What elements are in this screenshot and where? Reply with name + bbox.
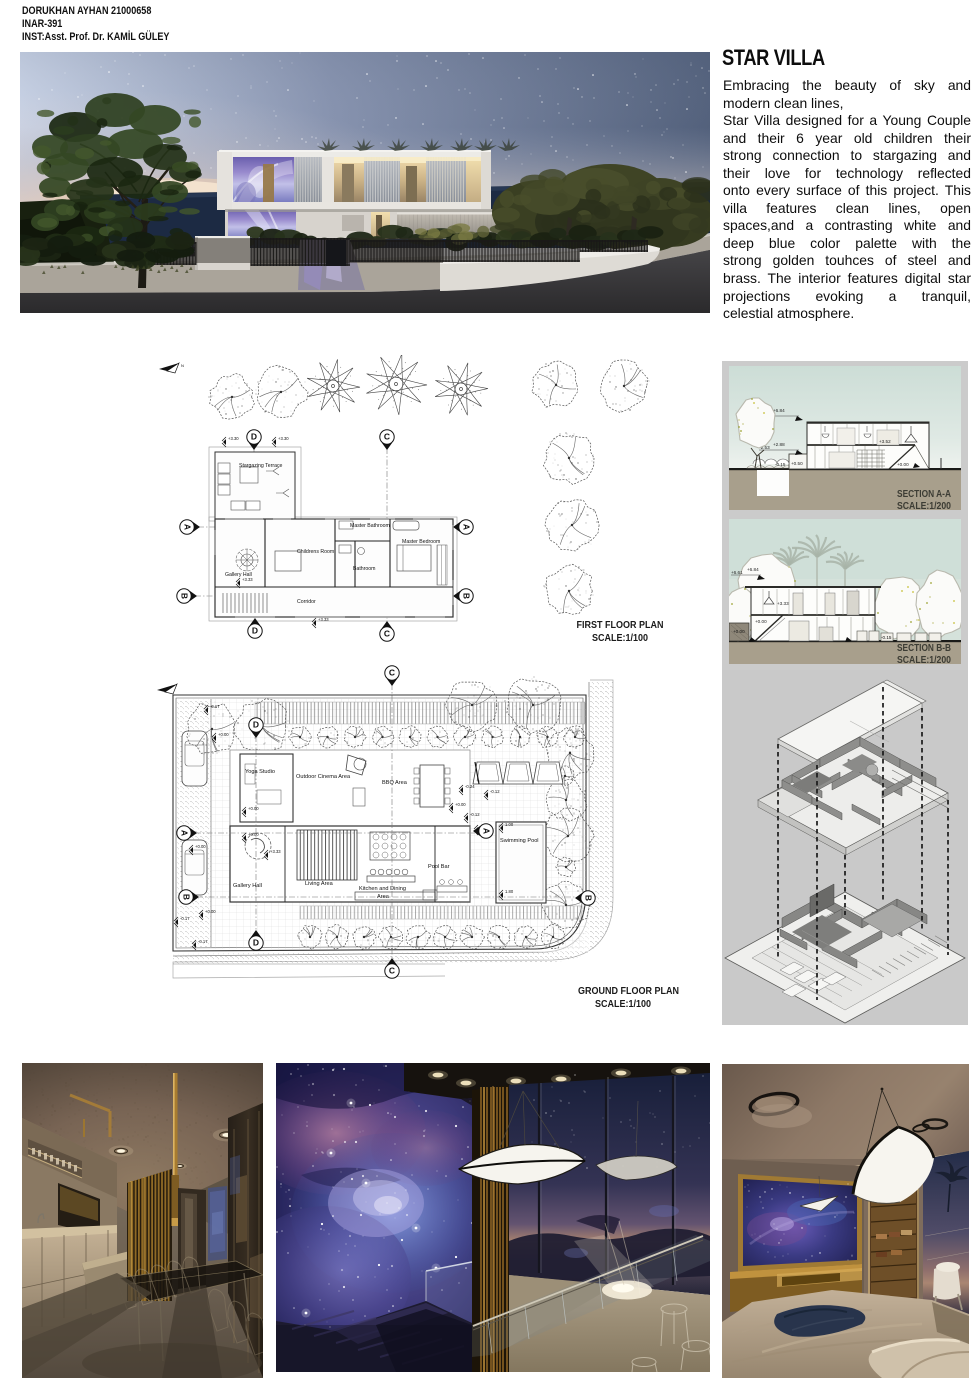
svg-text:Gallery Hall: Gallery Hall xyxy=(233,883,262,889)
svg-text:+3.33: +3.33 xyxy=(270,849,281,854)
svg-text:D: D xyxy=(252,626,258,636)
svg-text:+0.00: +0.00 xyxy=(248,806,259,811)
svg-text:-0.17: -0.17 xyxy=(180,916,190,921)
svg-text:+0.00: +0.00 xyxy=(897,462,909,467)
svg-text:+6.61: +6.61 xyxy=(731,570,743,575)
svg-text:Master Bedroom: Master Bedroom xyxy=(402,539,440,545)
svg-text:C: C xyxy=(384,432,390,442)
svg-text:-0.24: -0.24 xyxy=(465,784,475,789)
svg-text:+0.00: +0.00 xyxy=(455,802,466,807)
svg-text:Corridor: Corridor xyxy=(297,599,316,605)
svg-text:Swimming Pool: Swimming Pool xyxy=(500,838,539,844)
svg-text:SECTION B-B: SECTION B-B xyxy=(897,642,951,654)
svg-text:N: N xyxy=(181,363,184,368)
svg-text:+6.84: +6.84 xyxy=(773,408,785,413)
svg-text:-0.17: -0.17 xyxy=(210,704,220,709)
svg-text:1.00: 1.00 xyxy=(505,822,514,827)
svg-text:B: B xyxy=(583,895,593,901)
svg-text:Pool Bar: Pool Bar xyxy=(428,864,450,870)
svg-text:C: C xyxy=(389,966,395,976)
svg-text:+0.00: +0.00 xyxy=(218,732,229,737)
svg-text:-0.12: -0.12 xyxy=(490,789,500,794)
svg-text:1.80: 1.80 xyxy=(505,889,514,894)
svg-text:Kitchen and Dining: Kitchen and Dining xyxy=(359,886,406,892)
svg-text:SECTION A-A: SECTION A-A xyxy=(897,488,951,500)
svg-text:+3.33: +3.33 xyxy=(318,617,329,622)
svg-text:A: A xyxy=(481,828,491,834)
svg-text:Stargazing Terrace: Stargazing Terrace xyxy=(239,463,283,469)
svg-text:+3.30: +3.30 xyxy=(228,436,239,441)
svg-text:+3.33: +3.33 xyxy=(242,577,253,582)
svg-text:+0.00: +0.00 xyxy=(205,909,216,914)
svg-text:-0.15: -0.15 xyxy=(775,462,786,467)
svg-text:B: B xyxy=(461,593,471,599)
svg-text:C: C xyxy=(384,629,390,639)
svg-text:+3.52: +3.52 xyxy=(879,439,891,444)
svg-text:+0.50: +0.50 xyxy=(791,461,803,466)
svg-text:D: D xyxy=(253,938,259,948)
svg-text:A: A xyxy=(461,524,471,530)
svg-text:+3.33: +3.33 xyxy=(777,601,789,606)
svg-text:+0.00: +0.00 xyxy=(195,844,206,849)
svg-text:B: B xyxy=(181,894,191,900)
svg-text:Yoga Studio: Yoga Studio xyxy=(245,769,275,775)
svg-text:-0.17: -0.17 xyxy=(198,939,208,944)
svg-text:A: A xyxy=(182,524,192,530)
svg-text:+6.84: +6.84 xyxy=(747,567,759,572)
svg-text:A: A xyxy=(179,830,189,836)
svg-text:+0.00: +0.00 xyxy=(248,832,259,837)
svg-text:D: D xyxy=(253,720,259,730)
svg-text:-0.15: -0.15 xyxy=(881,635,892,640)
svg-text:+3.30: +3.30 xyxy=(278,436,289,441)
svg-text:C: C xyxy=(389,668,395,678)
svg-text:+0.00: +0.00 xyxy=(733,629,745,634)
svg-text:B: B xyxy=(179,593,189,599)
svg-text:BBQ Area: BBQ Area xyxy=(382,780,408,786)
svg-text:SCALE:1/200: SCALE:1/200 xyxy=(897,500,951,510)
svg-text:Master Bathroom: Master Bathroom xyxy=(350,523,390,529)
svg-text:+0.00: +0.00 xyxy=(755,619,767,624)
svg-text:Childrens Room: Childrens Room xyxy=(297,549,334,555)
svg-text:+2.88: +2.88 xyxy=(773,442,785,447)
svg-text:SCALE:1/200: SCALE:1/200 xyxy=(897,654,951,664)
svg-text:Living Area: Living Area xyxy=(305,881,334,887)
svg-text:Outdoor Cinema Area: Outdoor Cinema Area xyxy=(296,774,351,780)
svg-text:-0.12: -0.12 xyxy=(470,812,480,817)
svg-text:Area: Area xyxy=(377,894,390,900)
svg-text:D: D xyxy=(251,432,257,442)
svg-text:Bathroom: Bathroom xyxy=(353,566,376,572)
